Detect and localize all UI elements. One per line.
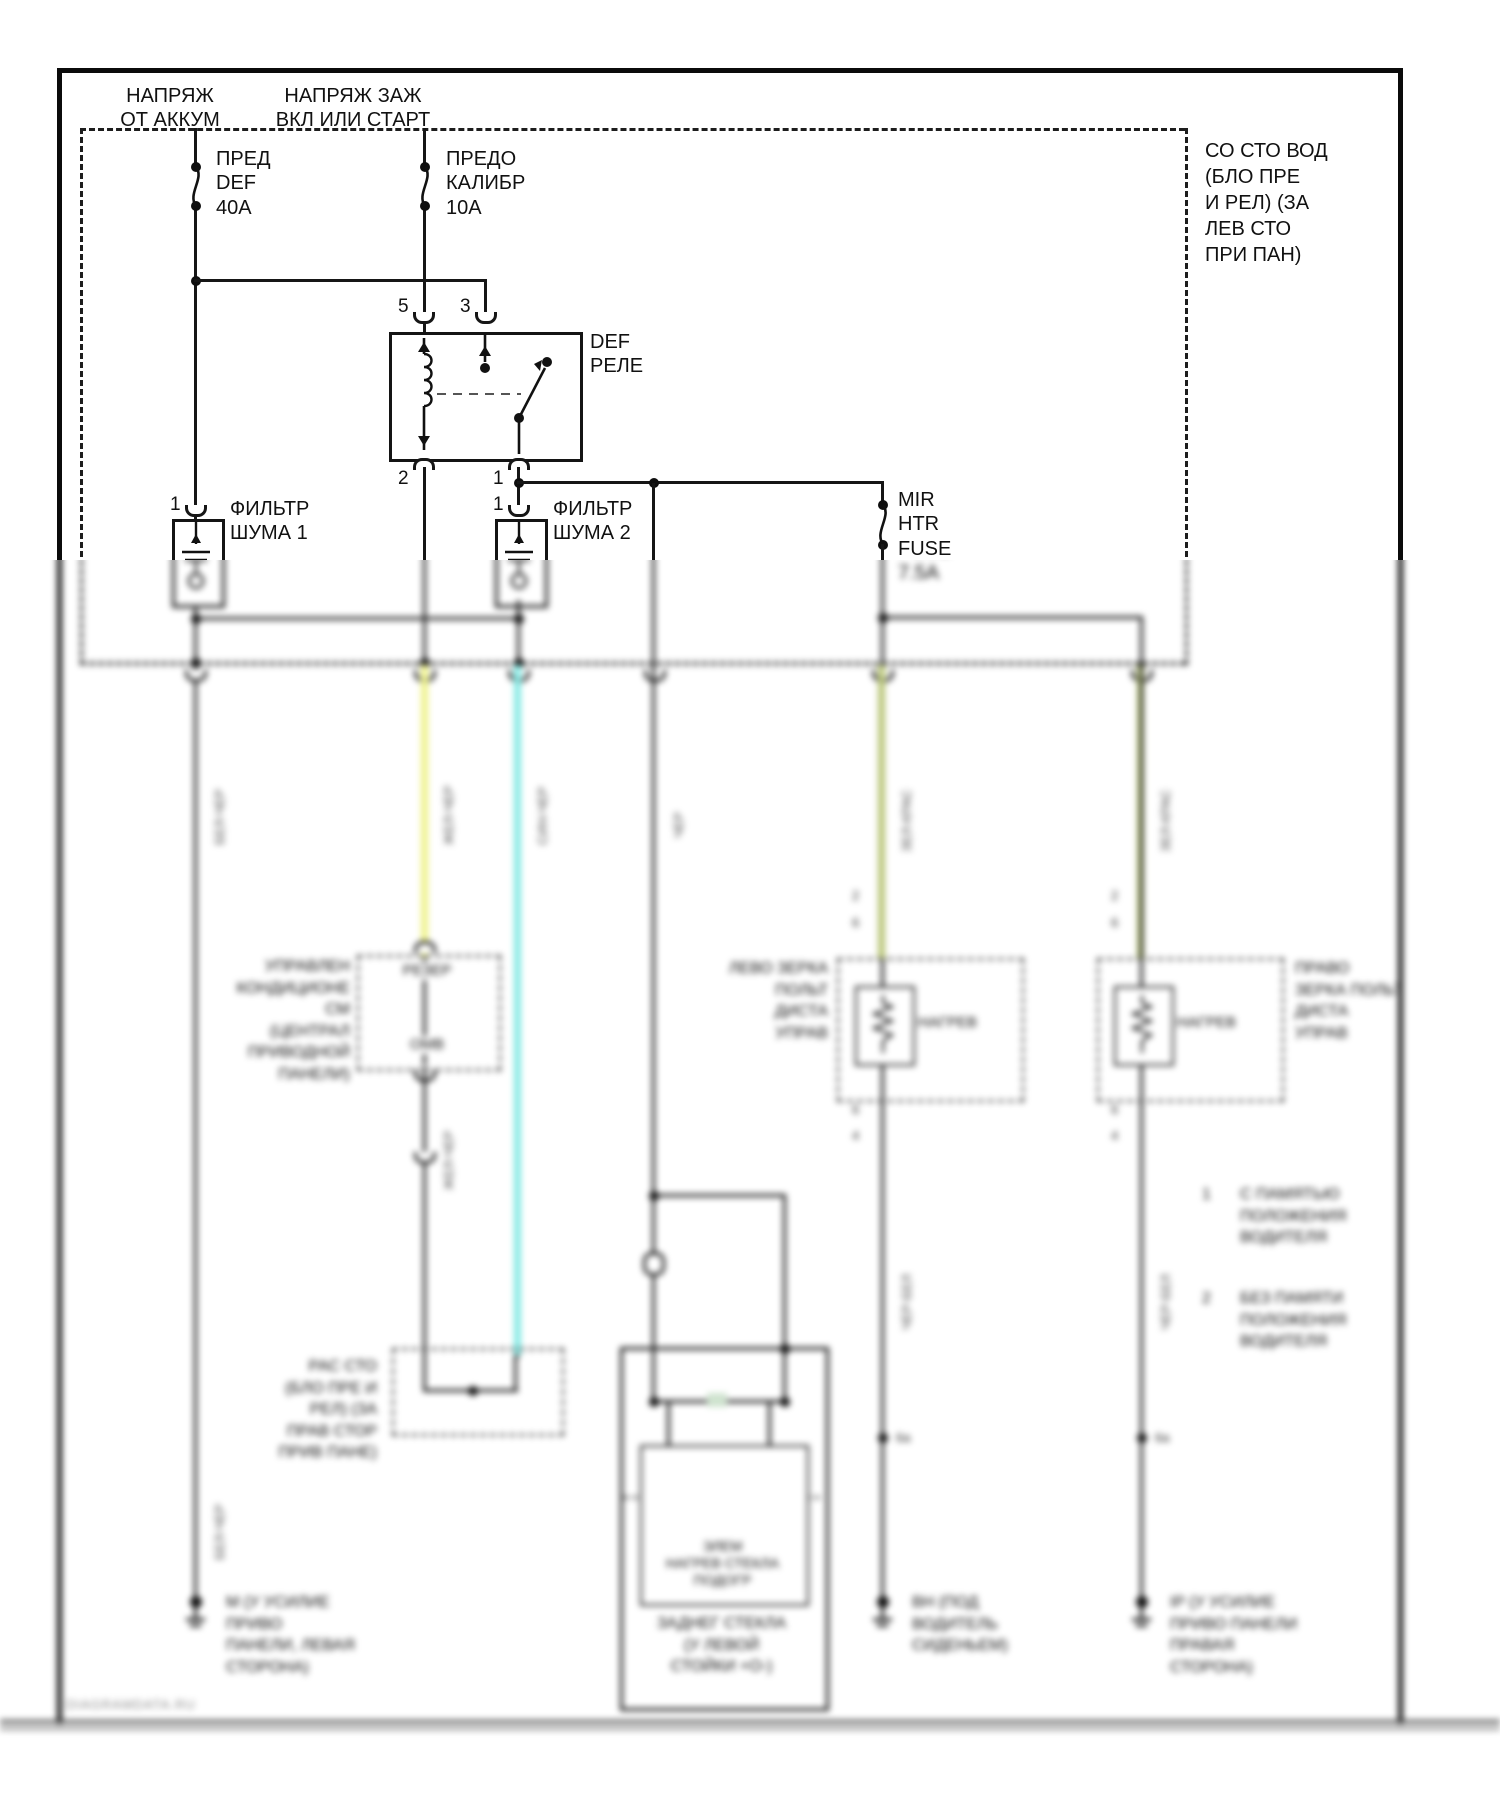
mirror-pin: 4 xyxy=(852,1128,859,1144)
wire-splice-left xyxy=(423,1359,426,1391)
mirror-pin: 2 xyxy=(852,888,859,904)
rear-window-element-label: ЭЛЕМНАГРЕВ СТЕКЛАПОДОГР xyxy=(645,1538,800,1589)
splice-id: 6а xyxy=(896,1430,910,1446)
watermark: DIAGRAMDATA.RU xyxy=(66,1697,196,1712)
gauge-fuse-label: ПРЕДОКАЛИБР10А xyxy=(446,147,525,220)
right-mirror-resistor xyxy=(1131,995,1153,1053)
ac-box-text-bottom: ОМВ xyxy=(377,1036,477,1054)
harness-dash-left xyxy=(80,128,83,560)
relay-pin3-connector xyxy=(475,312,497,324)
yellow-wire xyxy=(421,665,428,957)
frame-left xyxy=(57,68,62,560)
sharp-region: НАПРЯЖОТ АККУМ НАПРЯЖ ЗАЖВКЛ ИЛИ СТАРТ П… xyxy=(0,0,1500,560)
wire-mirror-feed xyxy=(881,544,884,560)
ground-stem xyxy=(194,1604,197,1618)
splice-box xyxy=(392,1348,564,1436)
relay-pin5-connector xyxy=(413,312,435,324)
wire-ign-1 xyxy=(423,128,426,166)
harness-location-note: СО СТО ВОД(БЛО ПРЕИ РЕЛ) (ЗАЛЕВ СТОПРИ П… xyxy=(1205,138,1328,268)
def-fuse-symbol xyxy=(187,166,205,208)
harness-dash-right xyxy=(1185,560,1188,665)
harness-dash-right xyxy=(1185,128,1188,560)
connector xyxy=(643,1252,665,1264)
note1-text: С ПАМЯТЬЮПОЛОЖЕНИЯВОДИТЕЛЯ xyxy=(1240,1184,1346,1249)
wire-color-label: ЧЕР xyxy=(671,812,686,838)
wire-splice-right xyxy=(514,1355,517,1392)
connector xyxy=(185,670,207,682)
wire-filter-bus xyxy=(194,617,519,620)
element-leg-right xyxy=(768,1402,771,1448)
wire-branch xyxy=(652,1194,785,1197)
frame-right xyxy=(1398,560,1403,1724)
battery-feed-label: НАПРЯЖОТ АККУМ xyxy=(100,84,240,133)
wire-in-box-right xyxy=(783,1349,786,1403)
wire-batt-1 xyxy=(194,128,197,166)
def-relay-label: DEFРЕЛЕ xyxy=(590,330,643,379)
wire-color-label: БЕЛ-ЧЕР xyxy=(212,789,227,845)
wire-relay-coil-return xyxy=(423,560,426,665)
frame-top xyxy=(57,68,1403,73)
mirror-pin: 6 xyxy=(852,1102,859,1118)
mir-fuse-label: MIRHTRFUSE7.5А xyxy=(898,560,951,586)
ground2-label: ВН (ПОДВОДИТЕЛЬСИДЕНЬЕМ) xyxy=(912,1592,1008,1657)
wire-color-label: ЗЕЛ-КРАС xyxy=(1158,789,1173,852)
wire-rear-window xyxy=(652,560,655,1404)
filter1-pin: 1 xyxy=(170,494,181,516)
wire-batt-to-relay xyxy=(194,279,487,282)
harness-dash-top xyxy=(80,128,1185,131)
splice-dot xyxy=(468,1386,478,1396)
junction-dot xyxy=(649,1397,659,1407)
junction-dot xyxy=(780,1397,790,1407)
wire-color-label: ЖЕЛ-ЧЕР xyxy=(441,1130,456,1190)
ground-stem xyxy=(881,1604,884,1618)
ground-bar xyxy=(1132,1618,1151,1621)
note2-text: БЕЗ ПАМЯТИПОЛОЖЕНИЯВОДИТЕЛЯ xyxy=(1240,1288,1346,1353)
frame-bottom-inner xyxy=(0,1727,1500,1730)
connector xyxy=(414,1152,436,1164)
wire-relay-coil-return xyxy=(423,467,426,560)
ground-bar xyxy=(190,1624,201,1627)
mirror-pin: 2 xyxy=(1111,888,1118,904)
wire-output-bus xyxy=(517,481,884,484)
wire-color-label: ЖЕЛ-ЧЕР xyxy=(441,785,456,845)
ground-bar xyxy=(873,1618,892,1621)
relay-pin5-number: 5 xyxy=(398,296,409,318)
connector xyxy=(414,941,436,953)
noise-filter1-capacitor xyxy=(176,522,216,560)
wire-batt-2 xyxy=(194,560,197,1605)
right-mirror-label: ПРАВОЗЕРКА ПОЛЬТДИСТАУПРАВ xyxy=(1295,958,1465,1044)
junction-dot xyxy=(1137,1433,1147,1443)
filter2-pin: 1 xyxy=(493,494,504,516)
harness-dash-bottom xyxy=(80,662,1185,665)
olive-wire-left xyxy=(878,665,885,960)
ground-bar xyxy=(1136,1624,1147,1627)
wire-color-label: ЧЕР-БЕЛ xyxy=(899,1274,914,1330)
wire-color-label: ЧЕР-БЕЛ xyxy=(1158,1274,1173,1330)
noise-filter2-label: ФИЛЬТРШУМА 2 xyxy=(553,497,632,546)
noise-filter1-capacitor xyxy=(176,560,216,600)
def-fuse-label: ПРЕДDEF40А xyxy=(216,147,271,220)
element-leg-left xyxy=(667,1402,670,1448)
wire-filter2-down xyxy=(517,600,520,666)
cyan-wire xyxy=(514,665,521,1355)
wire-right-mirror xyxy=(1140,616,1143,1605)
left-mirror-resistor xyxy=(872,995,894,1053)
rear-defogger-wiring-diagram-blurred: НАПРЯЖОТ АККУМ НАПРЯЖ ЗАЖВКЛ ИЛИ СТАРТ П… xyxy=(0,560,1500,1814)
wire-color-label: СИН-ЧЕР xyxy=(535,787,550,845)
connector xyxy=(644,670,666,682)
right-mirror-heater-label: НАГРЕВ xyxy=(1177,1014,1236,1032)
connector xyxy=(643,1264,665,1276)
note1-number: 1 xyxy=(1202,1186,1211,1204)
noise-filter2-capacitor xyxy=(499,560,539,600)
ground-bar xyxy=(877,1624,888,1627)
ac-unit-label: УПРАВЛЕНКОНДИЦИОНЕСМ(ЦЕНТРАЛПРИВОДНОЙПАН… xyxy=(222,956,350,1086)
element-mark xyxy=(707,1393,727,1407)
mirror-pin: 6 xyxy=(1111,1102,1118,1118)
noise-filter1-label: ФИЛЬТРШУМА 1 xyxy=(230,497,309,546)
wire-rear-window xyxy=(652,483,655,560)
ignition-feed-label: НАПРЯЖ ЗАЖВКЛ ИЛИ СТАРТ xyxy=(268,84,438,133)
harness-dash-left xyxy=(80,560,83,665)
wire-ac-down xyxy=(423,1067,426,1359)
junction-dot xyxy=(191,658,201,668)
ground-bar xyxy=(186,1618,205,1621)
rear-defogger-wiring-diagram: НАПРЯЖОТ АККУМ НАПРЯЖ ЗАЖВКЛ ИЛИ СТАРТ П… xyxy=(0,0,1500,560)
left-mirror-label: ЛЕВО ЗЕРКАПОЛЬТДИСТАУПРАВ xyxy=(688,958,828,1044)
wire-color-label: БЕЛ-ЧЕР xyxy=(212,1504,227,1560)
relay-pin3-number: 3 xyxy=(460,296,471,318)
note2-number: 2 xyxy=(1202,1290,1211,1308)
ground3-label: IP (У УСИЛИЕПРИВО ПАНЕЛИПРАВАЯСТОРОНА) xyxy=(1170,1592,1297,1678)
left-mirror-heater-label: НАГРЕВ xyxy=(918,1014,977,1032)
splice-note: РАС СТО(БЛО ПРЕ ИРЕЛ) (ЗАПРАВ СТОРПРИВ П… xyxy=(245,1356,377,1464)
filter2-connector xyxy=(508,505,530,517)
junction-dot xyxy=(878,1433,888,1443)
relay-pin2-number: 2 xyxy=(398,468,409,490)
wire-mirror-branch xyxy=(881,616,1143,619)
gauge-fuse-symbol xyxy=(416,166,434,208)
wire-color-label: ЗЕЛ-КРАС xyxy=(899,789,914,852)
relay-pin1-number: 1 xyxy=(493,468,504,490)
mirror-pin: 4 xyxy=(1111,1128,1118,1144)
noise-filter2-capacitor xyxy=(499,522,539,560)
wiring-diagram-page: НАПРЯЖОТ АККУМ НАПРЯЖ ЗАЖВКЛ ИЛИ СТАРТ П… xyxy=(0,0,1500,1814)
rear-window-caption: ЗАДНЕГ СТЕКЛА(У ЛЕВОЙСТОЙКИ +О-) xyxy=(620,1613,823,1678)
filter1-connector xyxy=(185,505,207,517)
ground1-label: М (У УСИЛИЕПРИВОПАНЕЛИ, ЛЕВАЯСТОРОНА) xyxy=(226,1592,355,1678)
ground-stem xyxy=(1140,1604,1143,1618)
ac-box-text-top: РЕЗЕР xyxy=(367,962,487,980)
wire-in-box-left xyxy=(652,1349,655,1403)
mirror-pin: 6 xyxy=(1111,915,1118,931)
mir-fuse-label: MIRHTRFUSE7.5А xyxy=(898,488,951,560)
frame-bottom-outer xyxy=(0,1720,1500,1723)
splice-id: 6а xyxy=(1155,1430,1169,1446)
frame-left xyxy=(57,560,62,1724)
mirror-pin: 6 xyxy=(852,915,859,931)
blurred-region: НАПРЯЖОТ АККУМ НАПРЯЖ ЗАЖВКЛ ИЛИ СТАРТ П… xyxy=(0,560,1500,1814)
def-relay-internals xyxy=(389,332,577,456)
frame-right xyxy=(1398,68,1403,560)
